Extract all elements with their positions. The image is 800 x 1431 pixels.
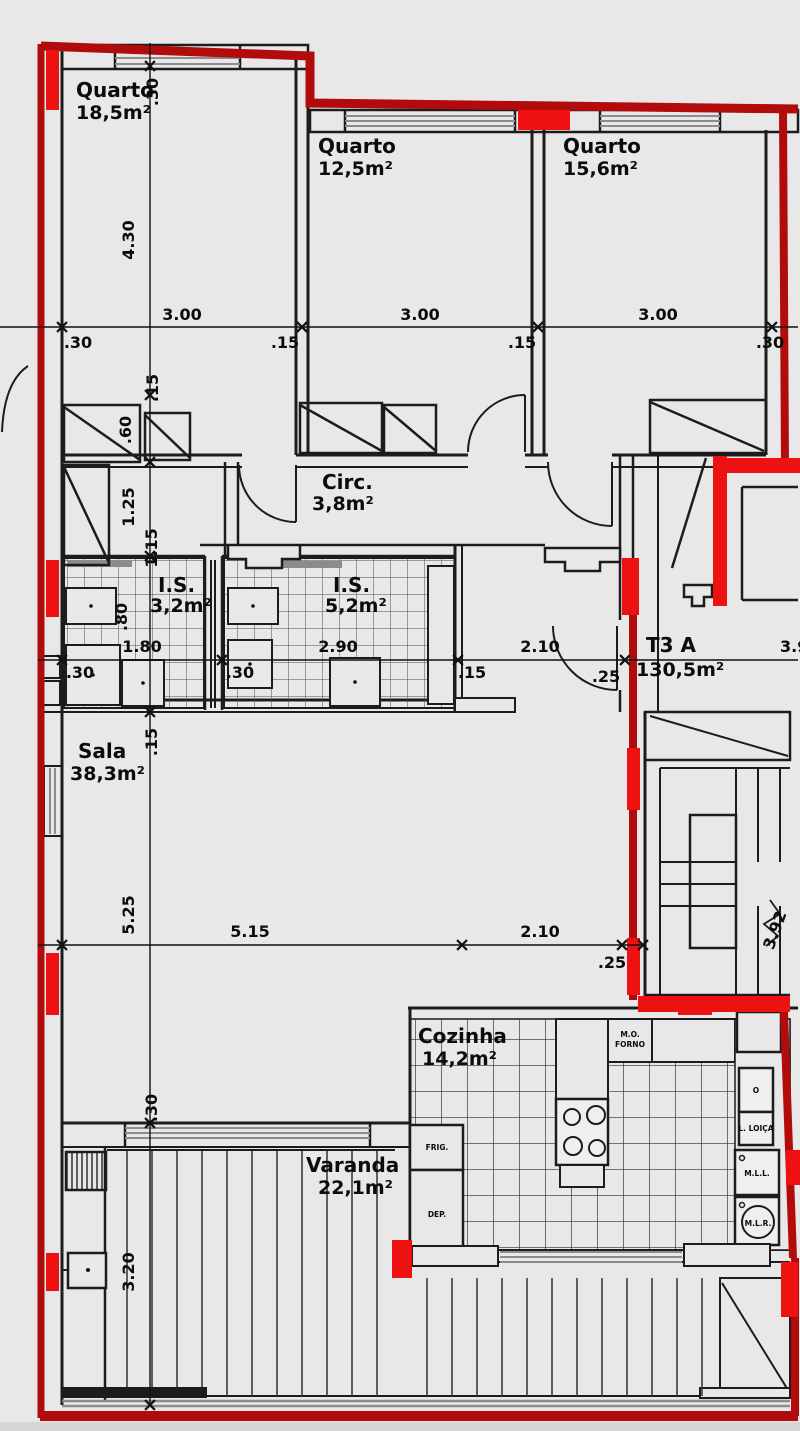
appliance-lloica: L. LOIÇA [738, 1124, 773, 1133]
dim-label: 3.00 [162, 305, 201, 324]
room-is1-area: 3,2m² [150, 595, 212, 617]
floor-plan: .30 3.00 .15 3.00 .15 3.00 .30 .30 4.30 … [0, 0, 800, 1431]
dim-label: .30 [64, 333, 92, 352]
dim-label: .15 [458, 663, 486, 682]
appliance-mlr: M.L.R. [745, 1219, 772, 1228]
room-is1-name: I.S. [158, 573, 195, 597]
dim-label: 1.15 [142, 528, 161, 567]
dim-label: 3.20 [119, 1252, 138, 1291]
room-sala-area: 38,3m² [70, 763, 145, 785]
room-is2-area: 5,2m² [325, 595, 387, 617]
dim-label: .15 [508, 333, 536, 352]
dim-label: 2.90 [318, 637, 357, 656]
room-circ-area: 3,8m² [312, 493, 374, 515]
dim-label: .30 [142, 1094, 161, 1122]
dim-label: 5.15 [230, 922, 269, 941]
room-circ-name: Circ. [322, 470, 373, 494]
room-is2-name: I.S. [333, 573, 370, 597]
dim-label: 2.10 [520, 637, 559, 656]
dim-label: .80 [112, 603, 131, 631]
dim-label: .25 [598, 953, 626, 972]
dim-label: 2.10 [520, 922, 559, 941]
room-sala-name: Sala [78, 739, 126, 763]
unit-area: 130,5m² [636, 659, 724, 681]
dim-label: .15 [143, 374, 162, 402]
dim-label: 5.25 [119, 895, 138, 934]
room-quarto1-area: 18,5m² [76, 102, 151, 124]
dim-label: .30 [756, 333, 784, 352]
dim-label: 3.00 [400, 305, 439, 324]
dim-label: 3.00 [638, 305, 677, 324]
room-cozinha-area: 14,2m² [422, 1048, 497, 1070]
dim-label: .30 [226, 663, 254, 682]
dim-label: 1.25 [119, 487, 138, 526]
appliance-forno: FORNO [615, 1040, 645, 1049]
room-quarto1-name: Quarto [76, 78, 154, 102]
floor-plan-svg: .30 3.00 .15 3.00 .15 3.00 .30 .30 4.30 … [0, 0, 800, 1431]
dim-label: 3.92 [780, 637, 800, 656]
appliance-mll: M.L.L. [744, 1169, 770, 1178]
dim-label: .60 [116, 416, 135, 444]
room-cozinha-name: Cozinha [418, 1024, 507, 1048]
bottom-margin [0, 1422, 800, 1431]
appliance-frig: FRIG. [426, 1143, 449, 1152]
appliance-dep: DEP. [428, 1210, 446, 1219]
dim-label: .15 [142, 728, 161, 756]
appliance-mo: M.O. [620, 1030, 640, 1039]
dim-label: .25 [592, 667, 620, 686]
room-quarto2-name: Quarto [318, 134, 396, 158]
room-quarto3-area: 15,6m² [563, 158, 638, 180]
appliance-o: O [753, 1086, 759, 1095]
unit-code: T3 A [646, 633, 697, 657]
dim-label: 4.30 [119, 220, 138, 259]
dim-label: .30 [66, 663, 94, 682]
dim-label: .15 [271, 333, 299, 352]
room-quarto3-name: Quarto [563, 134, 641, 158]
room-varanda-name: Varanda [306, 1153, 399, 1177]
room-varanda-area: 22,1m² [318, 1177, 393, 1199]
room-quarto2-area: 12,5m² [318, 158, 393, 180]
dim-label: 1.80 [122, 637, 161, 656]
